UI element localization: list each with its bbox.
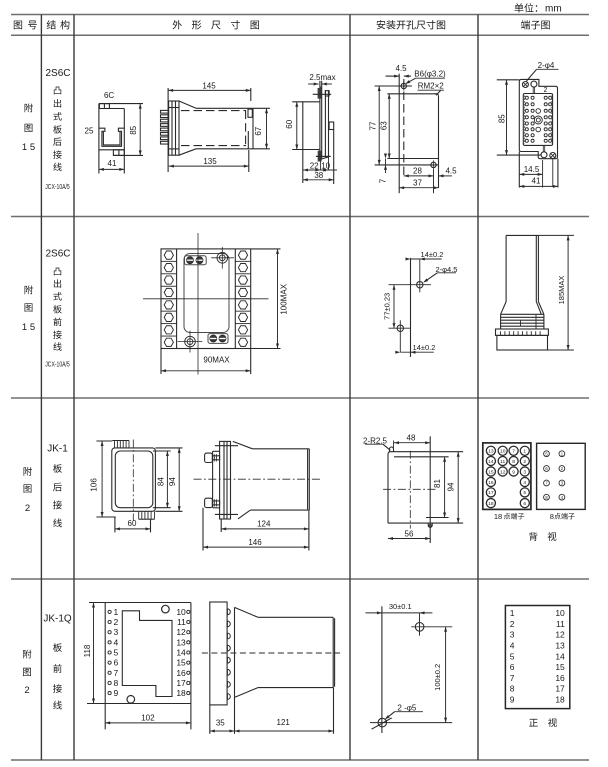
- svg-text:121: 121: [277, 718, 291, 727]
- svg-text:100±0.2: 100±0.2: [433, 664, 442, 691]
- svg-text:77±0.23: 77±0.23: [382, 293, 391, 320]
- svg-text:12: 12: [176, 627, 186, 637]
- svg-text:13: 13: [488, 449, 494, 455]
- svg-text:60: 60: [128, 519, 137, 528]
- svg-text:11: 11: [500, 459, 505, 465]
- svg-text:4: 4: [510, 641, 515, 651]
- svg-text:2.5max: 2.5max: [309, 73, 335, 82]
- svg-text:1: 1: [523, 449, 526, 455]
- svg-text:14.5: 14.5: [524, 165, 540, 174]
- svg-text:2: 2: [114, 617, 119, 627]
- svg-text:1: 1: [510, 608, 515, 618]
- svg-text:84: 84: [157, 477, 166, 486]
- svg-text:10: 10: [555, 608, 565, 618]
- svg-text:2S6C: 2S6C: [45, 68, 70, 79]
- svg-text:135: 135: [203, 157, 217, 166]
- svg-text:90MAX: 90MAX: [203, 355, 230, 364]
- svg-text:17: 17: [555, 684, 565, 694]
- svg-text:9: 9: [114, 688, 119, 698]
- svg-text:9: 9: [512, 469, 515, 475]
- svg-text:9: 9: [510, 695, 515, 705]
- svg-text:14: 14: [176, 648, 186, 658]
- svg-text:1 5: 1 5: [22, 142, 35, 153]
- svg-text:18: 18: [488, 501, 494, 507]
- svg-text:JK-1Q: JK-1Q: [43, 614, 72, 625]
- svg-text:41: 41: [532, 177, 541, 186]
- svg-text:1 5: 1 5: [22, 322, 35, 333]
- svg-text:15: 15: [176, 658, 186, 668]
- svg-text:13: 13: [555, 641, 565, 651]
- svg-text:16: 16: [555, 673, 565, 683]
- svg-text:118: 118: [83, 644, 92, 657]
- svg-text:85: 85: [497, 114, 506, 123]
- svg-text:41: 41: [108, 159, 117, 168]
- svg-text:15: 15: [555, 662, 565, 672]
- svg-text:5: 5: [510, 651, 515, 661]
- svg-text:85: 85: [129, 125, 138, 134]
- svg-text:8: 8: [114, 678, 119, 688]
- svg-text:4.5: 4.5: [395, 64, 407, 73]
- svg-text:JCX-10A/5: JCX-10A/5: [45, 182, 70, 191]
- svg-text:16: 16: [488, 480, 494, 486]
- svg-text:30±0.1: 30±0.1: [389, 602, 412, 611]
- svg-text:37: 37: [413, 178, 422, 187]
- svg-text:7: 7: [512, 449, 515, 455]
- svg-text:100MAX: 100MAX: [279, 283, 288, 314]
- svg-text:13: 13: [176, 637, 186, 647]
- svg-text:28: 28: [413, 167, 422, 176]
- svg-text:JK-1: JK-1: [47, 443, 68, 454]
- svg-text:25: 25: [85, 127, 94, 136]
- svg-text:11: 11: [556, 619, 565, 629]
- svg-text:185MAX: 185MAX: [557, 276, 566, 305]
- svg-text:7: 7: [510, 673, 515, 683]
- svg-text:17: 17: [488, 490, 494, 496]
- svg-text:3: 3: [523, 469, 526, 475]
- svg-text:35: 35: [216, 719, 225, 728]
- svg-text:6: 6: [114, 658, 119, 668]
- svg-text:6: 6: [523, 501, 526, 507]
- svg-text:mm: mm: [545, 3, 562, 14]
- svg-text:124: 124: [257, 519, 271, 528]
- svg-text:2: 2: [25, 503, 30, 514]
- svg-text:145: 145: [202, 82, 216, 91]
- svg-text:81: 81: [433, 479, 442, 488]
- svg-text:106: 106: [90, 478, 99, 492]
- svg-text:5: 5: [523, 490, 526, 496]
- svg-text:63: 63: [380, 121, 389, 130]
- svg-text:14: 14: [555, 651, 565, 661]
- svg-text:94: 94: [168, 477, 177, 486]
- svg-text:4.5: 4.5: [445, 167, 457, 176]
- svg-text:2: 2: [523, 459, 526, 465]
- svg-text:6C: 6C: [104, 91, 114, 100]
- svg-text:JCX-10A/5: JCX-10A/5: [45, 360, 70, 369]
- svg-text:4: 4: [523, 480, 526, 486]
- svg-text:67: 67: [254, 126, 263, 135]
- svg-text:4: 4: [114, 637, 119, 647]
- svg-text:2: 2: [510, 619, 515, 629]
- svg-text:2S6C: 2S6C: [45, 249, 70, 260]
- svg-text:3: 3: [114, 627, 119, 637]
- svg-text:146: 146: [248, 538, 262, 547]
- svg-text:77: 77: [369, 121, 378, 130]
- svg-text:2-φ4: 2-φ4: [538, 61, 555, 70]
- svg-text:1: 1: [114, 607, 119, 617]
- svg-text:18: 18: [555, 695, 565, 705]
- svg-text:12: 12: [500, 469, 506, 475]
- svg-text:10: 10: [321, 162, 330, 171]
- svg-text:18: 18: [176, 688, 186, 698]
- svg-text:3: 3: [510, 630, 515, 640]
- svg-text:10: 10: [500, 449, 506, 455]
- svg-text:15: 15: [488, 469, 494, 475]
- svg-text:2: 2: [24, 685, 29, 696]
- svg-text:7: 7: [114, 668, 119, 678]
- svg-text:60: 60: [285, 119, 294, 128]
- svg-text:38: 38: [314, 171, 323, 180]
- svg-text:RM2×2: RM2×2: [418, 82, 445, 91]
- svg-text:56: 56: [405, 529, 414, 538]
- svg-text:8: 8: [510, 684, 515, 694]
- svg-text:16: 16: [176, 668, 186, 678]
- svg-text:14±0.2: 14±0.2: [413, 343, 436, 352]
- svg-text:10: 10: [176, 607, 186, 617]
- svg-text:5: 5: [114, 648, 119, 658]
- svg-text:6: 6: [510, 662, 515, 672]
- svg-text:102: 102: [141, 713, 155, 722]
- svg-text:8: 8: [512, 459, 515, 465]
- svg-text:8: 8: [550, 512, 554, 521]
- svg-text:2 -φ5: 2 -φ5: [397, 703, 417, 712]
- svg-text:17: 17: [176, 678, 186, 688]
- svg-text:B6(φ3.2): B6(φ3.2): [414, 70, 446, 79]
- svg-text:48: 48: [407, 433, 416, 442]
- svg-text:22: 22: [310, 162, 319, 171]
- svg-text:7: 7: [379, 178, 388, 183]
- svg-text:11: 11: [177, 617, 186, 627]
- svg-text:18: 18: [494, 512, 502, 521]
- svg-text:94: 94: [447, 482, 456, 491]
- svg-text:12: 12: [555, 630, 565, 640]
- svg-text:14: 14: [488, 459, 494, 465]
